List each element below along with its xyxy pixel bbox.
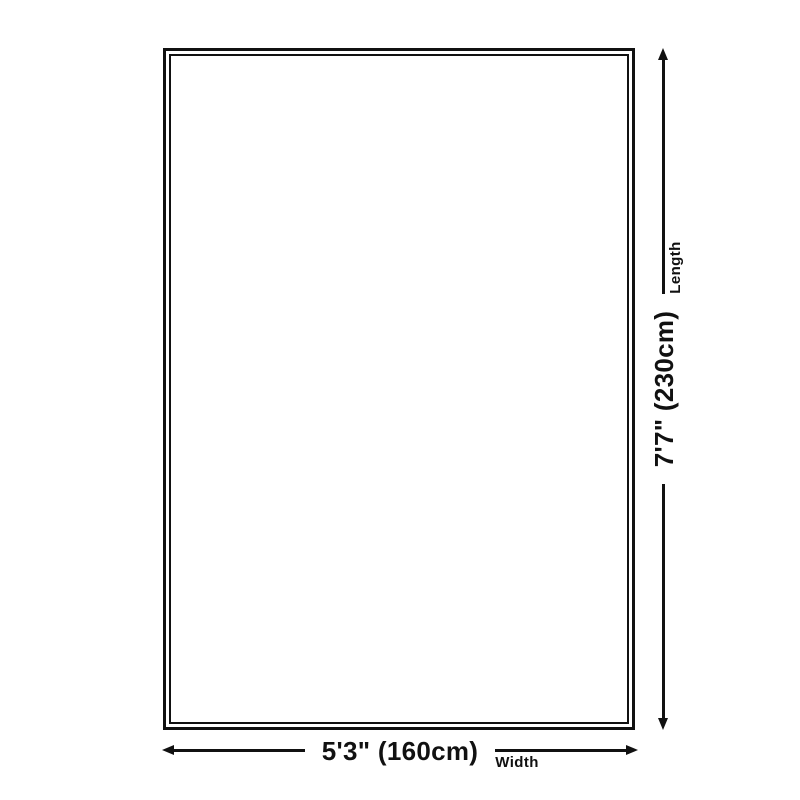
width-arrow-segment-right: Width (495, 742, 638, 758)
length-arrow-segment-bottom (655, 484, 671, 730)
arrow-up-icon (658, 48, 668, 60)
rug-inner-border (169, 54, 629, 724)
width-label: Width (495, 754, 539, 771)
width-arrow-segment-left (162, 742, 305, 758)
length-dimension: 7'7" (230cm) Length (641, 48, 685, 730)
length-value: 7'7" (230cm) (649, 294, 680, 485)
width-dimension: 5'3" (160cm) Width (162, 728, 638, 772)
dimension-line (662, 484, 665, 720)
arrow-right-icon (626, 745, 638, 755)
rug-outline (163, 48, 635, 730)
length-arrow-segment-top: Length (655, 48, 671, 294)
dimension-line (495, 749, 628, 752)
length-label: Length (667, 241, 684, 293)
dimension-line (172, 749, 305, 752)
dimension-line (662, 58, 665, 294)
size-diagram: 5'3" (160cm) Width 7'7" (230cm) Length (0, 0, 800, 800)
width-value: 5'3" (160cm) (305, 736, 496, 767)
